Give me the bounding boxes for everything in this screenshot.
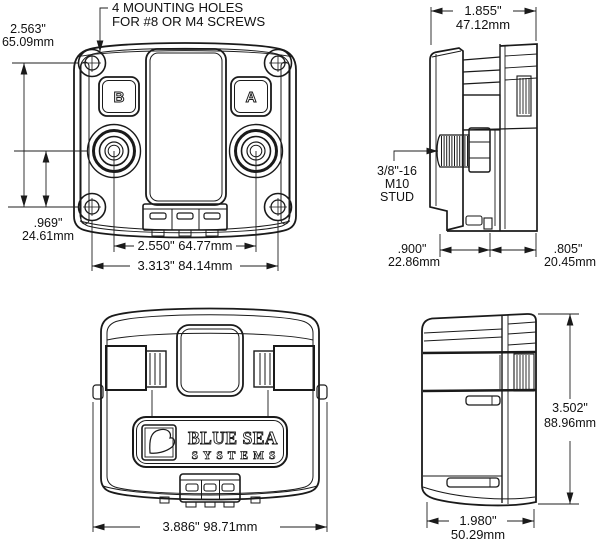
wave-icon [150,429,175,453]
mounting-note-line1: 4 MOUNTING HOLES [112,0,243,15]
logo-text-line1: BLUE SEA [188,428,278,448]
connector-icon [143,204,227,236]
stud-label-line2: M10 [385,177,409,191]
dim-mount-height-mm: 65.09mm [2,35,54,49]
button-b-label: B [114,89,125,106]
dim-rear-width: 3.886" 98.71mm [163,519,258,534]
rear-view-drawing: BLUE SEA SYSTEMS [93,309,327,508]
dim-stud-spacing: 2.550" 64.77mm [138,238,233,253]
mounting-hole-icon [79,194,106,221]
front-view-drawing: B A [74,43,296,238]
stud-label-line1: 3/8"-16 [377,164,417,178]
dim-width-in: 1.855" [464,3,502,18]
side-latch [106,346,166,390]
button-b: B [99,77,139,116]
dim-mount-spacing: 3.313" 84.14mm [138,258,233,273]
dim-stud-offset-mm: 24.61mm [22,229,74,243]
dim-stud-offset-in: .969" [34,216,63,230]
side-view-upper-drawing [430,44,537,231]
center-boss [177,325,243,396]
dimensioned-drawing: B A [0,0,600,541]
dim-front-depth-in: .805" [554,242,583,256]
technical-drawing-page: B A [0,0,600,541]
side-latch [254,346,314,390]
dim-width-mm: 47.12mm [456,17,510,32]
latch-tab [447,478,499,487]
side-view-lower-dimensions: 3.502" 88.96mm 1.980" 50.29mm [427,314,596,541]
dim-side-height-mm: 88.96mm [544,416,596,430]
dim-mount-height-in: 2.563" [10,22,46,36]
dim-rear-depth-in: .900" [398,242,427,256]
latch-tab [466,396,500,405]
button-a: A [231,77,271,116]
dim-side-depth-mm: 50.29mm [451,527,505,541]
logo-text-line2: SYSTEMS [192,450,281,462]
side-view-lower-drawing [422,314,536,505]
dim-side-depth-in: 1.980" [459,513,497,528]
dim-rear-depth-mm: 22.86mm [388,255,440,269]
center-panel [146,49,226,205]
stud-label-line3: STUD [380,190,414,204]
connector-icon [160,474,260,507]
button-a-label: A [246,89,257,106]
dim-front-depth-mm: 20.45mm [544,255,596,269]
blue-sea-logo: BLUE SEA SYSTEMS [133,417,287,467]
dim-side-height-in: 3.502" [552,401,588,415]
mounting-note-line2: FOR #8 OR M4 SCREWS [112,14,265,29]
mounting-hole-icon [265,194,292,221]
